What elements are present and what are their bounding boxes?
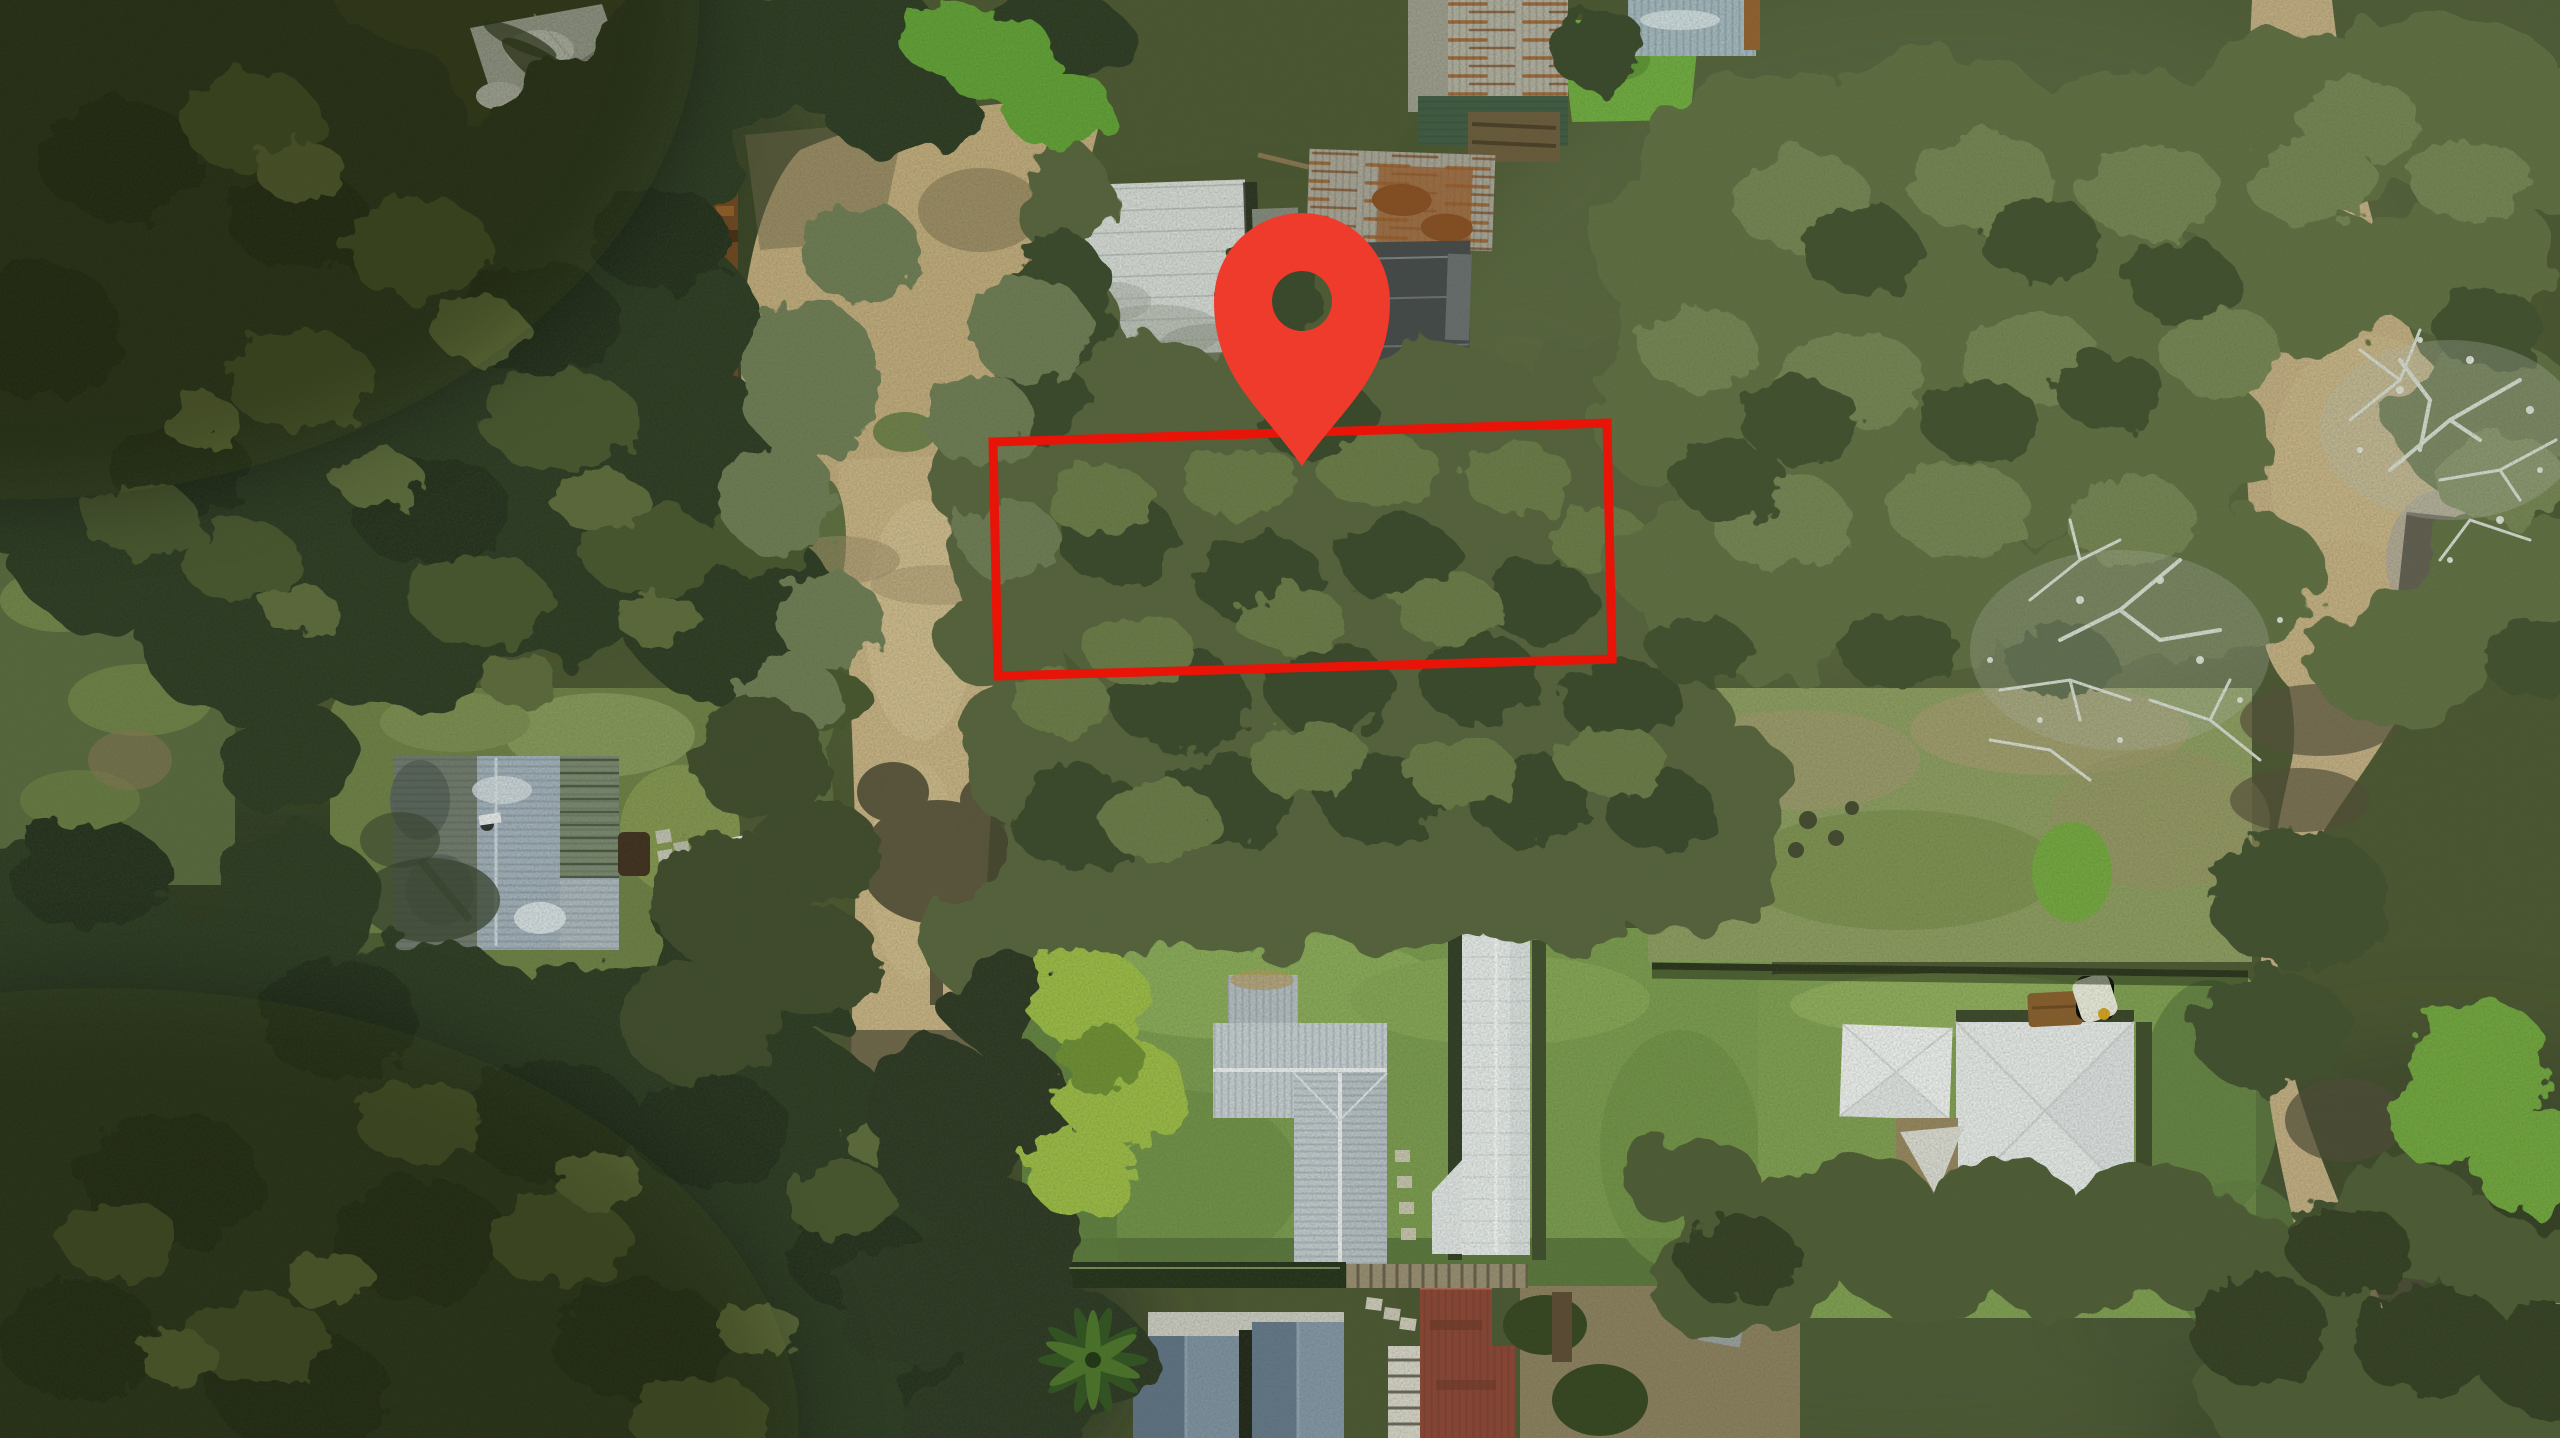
aerial-photo [0, 0, 2560, 1438]
aerial-photo-canvas [0, 0, 2560, 1438]
